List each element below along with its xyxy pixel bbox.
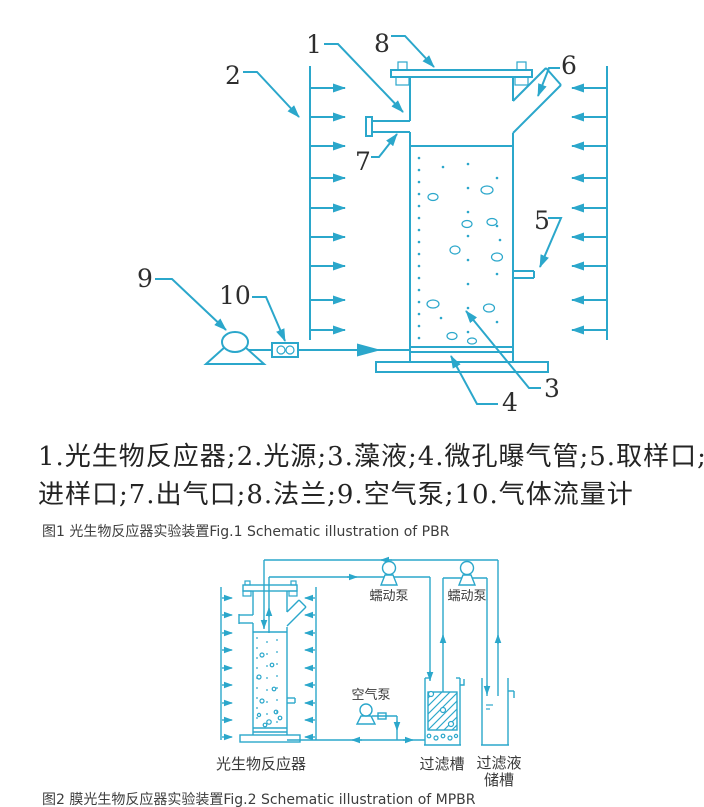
callout-2: 2 [225, 61, 299, 117]
filtrate-tank-label-line2: 储槽 [484, 771, 514, 789]
callout-3-number: 3 [544, 374, 560, 403]
callout-5-number: 5 [534, 206, 550, 235]
figure1-legend: 1.光生物反应器;2.光源;3.藻液;4.微孔曝气管;5.取样口;6. 进样口;… [38, 438, 704, 514]
callout-10-number: 10 [219, 281, 251, 310]
light-bank-right-mini [305, 587, 316, 740]
membrane-module [428, 692, 457, 731]
callout-3-leader [466, 311, 541, 388]
light-bank-right [572, 66, 607, 340]
air-pump-symbol-mini [357, 704, 386, 724]
callout-4: 4 [451, 356, 518, 417]
peristaltic-pump-left-label: 蠕动泵 [369, 589, 408, 604]
figure2-caption: 图2 膜光生物反应器实验装置Fig.2 Schematic illustrati… [42, 789, 476, 807]
outlet-port [366, 117, 410, 136]
light-bank-left-mini [221, 587, 232, 740]
gas-flowmeter-symbol [248, 343, 298, 357]
callout-10-leader [252, 297, 285, 341]
callout-8-number: 8 [374, 29, 390, 58]
callout-1-number: 1 [306, 30, 322, 59]
flange [391, 62, 532, 85]
peristaltic-pump-right-symbol [459, 562, 475, 586]
callout-4-leader [451, 356, 498, 404]
callout-9: 9 [137, 264, 226, 330]
figure1-diagram: 1 8 2 6 7 5 9 10 [0, 0, 704, 432]
callout-2-leader [243, 72, 299, 117]
callout-9-leader [155, 279, 226, 330]
filtrate-tank-label-line1: 过滤液 [476, 754, 521, 772]
air-pump-label: 空气泵 [351, 687, 390, 703]
filter-tank [424, 678, 464, 745]
algae-liquid-bubbles-mini [256, 637, 282, 727]
air-supply-line [298, 344, 410, 357]
sampling-port [513, 271, 534, 278]
figure2-diagram: 光生物反应器 蠕动泵 蠕动泵 空气泵 [0, 545, 704, 807]
paper-figure-page: 1 8 2 6 7 5 9 10 [0, 0, 704, 807]
callout-7-leader [371, 134, 397, 157]
callout-8: 8 [374, 29, 434, 67]
filter-tank-label: 过滤槽 [419, 755, 464, 773]
callout-9-number: 9 [137, 264, 153, 293]
callout-5: 5 [534, 206, 561, 267]
reactor-label: 光生物反应器 [216, 755, 306, 773]
peristaltic-pump-left-symbol [381, 562, 397, 586]
peristaltic-pump-right-label: 蠕动泵 [447, 589, 486, 604]
callout-2-number: 2 [225, 61, 241, 90]
figure1-legend-line-1: 1.光生物反应器;2.光源;3.藻液;4.微孔曝气管;5.取样口;6. [38, 438, 704, 476]
figure1-legend-line-2: 进样口;7.出气口;8.法兰;9.空气泵;10.气体流量计 [38, 476, 704, 514]
algae-liquid-bubbles [418, 157, 503, 344]
base-plate [376, 362, 548, 372]
reactor-vessel [410, 77, 513, 362]
callout-7: 7 [355, 134, 397, 176]
callout-6-number: 6 [561, 51, 577, 80]
reactor-vessel-mini [239, 581, 306, 742]
air-pump-symbol [206, 332, 264, 364]
light-bank-left [310, 66, 345, 340]
figure1-caption: 图1 光生物反应器实验装置Fig.1 Schematic illustratio… [42, 521, 449, 541]
callout-7-number: 7 [355, 147, 371, 176]
callout-4-number: 4 [502, 388, 518, 417]
callout-10: 10 [219, 281, 285, 341]
